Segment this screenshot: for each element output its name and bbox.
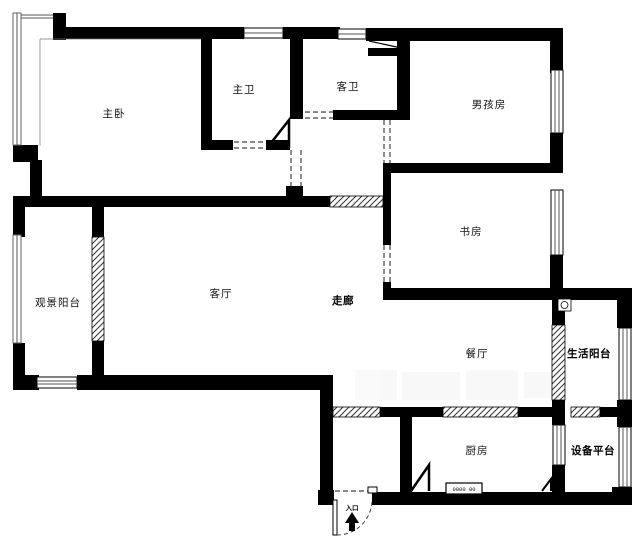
stove-symbol: 0000 00 xyxy=(446,483,482,494)
window-equipment-right xyxy=(619,427,631,487)
label-view-balcony: 观景阳台 xyxy=(35,296,81,309)
stove-label: 0000 00 xyxy=(452,486,475,493)
label-corridor: 走廊 xyxy=(331,294,354,307)
window-study-right xyxy=(551,190,563,255)
window-top-master-bath xyxy=(244,28,283,38)
label-guest-bath: 客卫 xyxy=(337,80,360,93)
window-balcony-bottom xyxy=(37,377,77,388)
label-living-room: 客厅 xyxy=(210,287,233,300)
label-entrance: 入口 xyxy=(345,504,359,512)
window-boys-room-right xyxy=(551,70,563,133)
label-life-balcony: 生活阳台 xyxy=(567,347,611,360)
window-top-guest-bath xyxy=(338,29,366,39)
gas-meter-symbol xyxy=(558,299,571,311)
label-master-bedroom: 主卧 xyxy=(103,107,126,120)
entrance-strike-plate xyxy=(368,487,377,493)
label-equipment-platform: 设备平台 xyxy=(571,444,615,457)
entrance-door-leaf xyxy=(333,500,337,535)
label-boys-room: 男孩房 xyxy=(472,98,507,111)
watermark xyxy=(355,370,560,400)
floor-plan-canvas: 0000 00 主卧 主卫 客卫 男孩房 书房 观景阳台 客厅 走廊 餐厅 生活… xyxy=(0,0,644,541)
label-master-bath: 主卫 xyxy=(233,84,256,96)
window-life-balcony-right xyxy=(619,328,631,400)
label-study: 书房 xyxy=(460,225,483,238)
window-kitchen-equipment xyxy=(553,425,565,465)
window-balcony-left xyxy=(13,235,21,343)
floor-plan-drawing: 0000 00 主卧 主卫 客卫 男孩房 书房 观景阳台 客厅 走廊 餐厅 生活… xyxy=(0,0,644,541)
label-dining-room: 餐厅 xyxy=(466,347,489,360)
label-kitchen: 厨房 xyxy=(466,444,489,457)
